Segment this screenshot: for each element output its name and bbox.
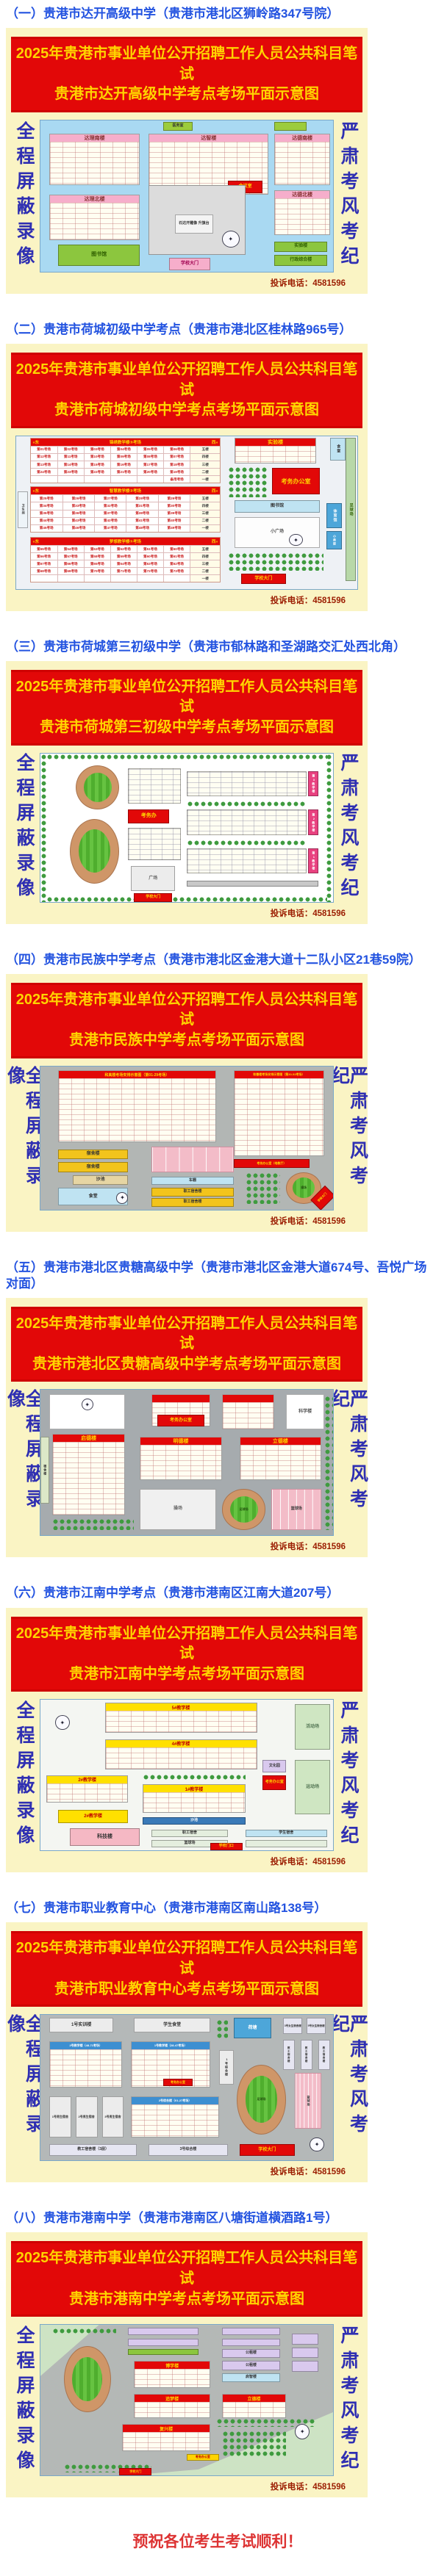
- room-row: 第44考场第43考场第42考场第41考场第40考场二楼: [31, 517, 221, 524]
- banner-line1: 2025年贵港市事业单位公开招聘工作人员公共科目笔试: [11, 44, 362, 84]
- trees-6-5: [143, 1774, 245, 1781]
- block-label: 考务办公室: [281, 478, 310, 485]
- block-label: 学生宿舍: [279, 1831, 293, 1836]
- exam-room-cell: 第20考场: [137, 469, 163, 475]
- field-inner: 操场: [293, 1177, 315, 1198]
- exam-grid: [50, 2049, 122, 2087]
- floor-label: 一楼: [190, 476, 220, 483]
- room-row: 第55考场第54考场第53考场第52考场第51考场第50考场五楼: [31, 545, 221, 552]
- exam-room-cell: 第37考场: [94, 510, 126, 517]
- exam-room-cell: 第32考场: [94, 502, 126, 509]
- block-label: 3号综合楼: [180, 2148, 197, 2152]
- map-building-8-11: 公租楼: [222, 2361, 281, 2370]
- exam-room-cell: 第51考场: [137, 546, 163, 552]
- compass-icon-5-1: ✦: [82, 1399, 93, 1410]
- banner-title: 2025年贵港市事业单位公开招聘工作人员公共科目笔试贵港市港南中学考点考场平面示…: [11, 2241, 362, 2317]
- map-building-8-13: [292, 2334, 318, 2344]
- side-left-column: 全程屏蔽录像: [10, 120, 40, 273]
- exam-room-cell: [110, 476, 137, 483]
- block-label: 食堂: [89, 1194, 98, 1199]
- banner-title: 2025年贵港市事业单位公开招聘工作人员公共科目笔试贵港市江南中学考点考场平面示…: [11, 1617, 362, 1692]
- exam-room-cell: 第61考场: [163, 553, 190, 560]
- exam-room-cell: 第07考场: [163, 454, 190, 461]
- banner-line1: 2025年贵港市事业单位公开招聘工作人员公共科目笔试: [11, 360, 362, 400]
- exam-room-cell: 第72考场: [137, 568, 163, 574]
- map-building-8-6: [128, 2349, 199, 2355]
- block-label: 体育馆: [332, 509, 337, 522]
- exam-room-cell: 第03考场: [84, 447, 110, 453]
- map-building-grid-1-10: 达德北楼: [274, 190, 330, 236]
- block-label: 行政综合楼: [290, 258, 312, 263]
- room-row: 第25考场第26考场第27考场第28考场第29考场五楼: [31, 494, 221, 502]
- banner-line1: 2025年贵港市事业单位公开招聘工作人员公共科目笔试: [11, 990, 362, 1031]
- block-label: 3号女生宿舍楼: [285, 2024, 301, 2027]
- map-building-grid-7-9: 2号教学楼（48-71考场）: [49, 2041, 123, 2088]
- trees-2-6: [228, 466, 269, 497]
- floor-label: 二楼: [190, 469, 220, 475]
- exam-room-cell: 第44考场: [31, 518, 62, 524]
- map-building-grid-2-4: 实验楼: [235, 438, 316, 463]
- exam-room-cell: 第31考场: [126, 502, 157, 509]
- exam-grid: [275, 198, 329, 235]
- exam-room-cell: [31, 476, 57, 483]
- block-label: 宿舍楼: [87, 1165, 100, 1170]
- map-building-1-14: 行政综合楼: [274, 255, 327, 265]
- room-table-header: «东智慧教学楼②考场西»: [31, 487, 221, 494]
- map-building-4-5: 沙池: [73, 1175, 129, 1186]
- exam-room-cell: 第42考场: [94, 518, 126, 524]
- exam-room-cell: 第14考场: [57, 461, 84, 468]
- map-building-2-1: 卫生间: [18, 491, 28, 528]
- exam-room-cell: 第46考场: [62, 525, 94, 532]
- exam-grid: [235, 446, 315, 463]
- exam-room-cell: 第27考场: [94, 495, 126, 502]
- block-label: 广场: [149, 876, 157, 881]
- complaint-phone: 投诉电话：4581596: [6, 2161, 368, 2179]
- exam-room-cell: 第12考场: [31, 454, 57, 461]
- map-building-3-19: 学校大门: [134, 893, 172, 902]
- floor-label: 五楼: [190, 495, 220, 502]
- exam-room-cell: 第09考场: [110, 454, 137, 461]
- exam-room-cell: 第59考场: [110, 553, 137, 560]
- exam-room-cell: 第34考场: [31, 502, 62, 509]
- exam-room-cell: [57, 575, 84, 582]
- map-building-grid-8-17: 立德楼: [222, 2394, 287, 2418]
- campus-map: 医务室达理南楼达智楼达德南楼会议室达理北楼广场石达开雕像 升旗台✦达德北楼图书馆…: [40, 120, 334, 273]
- trees-3-2: [40, 754, 48, 902]
- map-building-7-21: 学校大门: [240, 2144, 296, 2156]
- banner-line2: 贵港市达开高级中学考点考场平面示意图: [11, 84, 362, 105]
- compass-icon-1-9: ✦: [222, 231, 240, 248]
- side-right-column: 严肃考风考纪: [334, 120, 364, 273]
- exam-room-cell: 第21考场: [110, 469, 137, 475]
- block-label: 石达开雕像 升旗台: [179, 222, 209, 226]
- exam-room-cell: 第45考场: [31, 525, 62, 532]
- map-building-6-17: 学校门口: [210, 1843, 243, 1850]
- section-heading: （七）贵港市职业教育中心（贵港市港南区南山路138号）: [0, 1897, 443, 1922]
- campus-map: 和真楼考场安排示意图（第01-29考场）和善楼考场安排示意图（第30-53考场）…: [40, 1066, 334, 1211]
- section-3: （三）贵港市荷城第三初级中学（贵港市郁林路和圣湖路交汇处西北角）2025年贵港市…: [0, 636, 447, 924]
- trees-4-12: [246, 1172, 281, 1204]
- grid-building-3-5: [128, 768, 181, 804]
- section-panel: 2025年贵港市事业单位公开招聘工作人员公共科目笔试贵港市职业教育中心考点考场平…: [6, 1922, 368, 2182]
- banner-line1: 2025年贵港市事业单位公开招聘工作人员公共科目笔试: [11, 1314, 362, 1354]
- building-name: 达德北楼: [275, 191, 329, 198]
- map-building-8-23: 学校大门: [119, 2468, 151, 2475]
- block-label: 车棚: [189, 1179, 196, 1183]
- floor-label: 一楼: [190, 575, 220, 582]
- field-label: 操场: [301, 1186, 307, 1190]
- map-building-1-0: 医务室: [163, 122, 193, 131]
- floor-label: 三楼: [190, 510, 220, 517]
- trees-5-13: [324, 1396, 333, 1529]
- building-name: 达理北楼: [50, 195, 139, 203]
- complaint-phone: 投诉电话：4581596: [6, 2476, 368, 2494]
- map-building-8-12: 启智楼: [222, 2373, 281, 2382]
- trees-8-1: [52, 2328, 117, 2335]
- block-label: 图书馆: [271, 504, 284, 509]
- block-label: 考务办公室: [170, 1418, 192, 1424]
- exam-room-cell: 第73考场: [163, 568, 190, 574]
- map-building-8-14: [292, 2348, 318, 2358]
- building-name: 复兴楼: [123, 2425, 209, 2432]
- map-building-grid-1-2: 达理南楼: [49, 134, 140, 185]
- side-right-column: 严肃考风考纪: [334, 753, 364, 903]
- map-building-grid-6-6: 1#教学楼: [143, 1784, 245, 1813]
- map-building-2-5: 食堂: [330, 438, 346, 461]
- exam-room-cell: 第04考场: [110, 447, 137, 453]
- map-building-7-1: 学生食堂: [134, 2018, 210, 2032]
- exam-grid: [123, 2432, 209, 2450]
- side-text-right: 严肃考风考纪: [340, 1700, 358, 1850]
- grid-building-3-13: [187, 809, 307, 834]
- block-label: 教工宿舍楼: [305, 2046, 308, 2063]
- block-label: 科学楼: [298, 1410, 312, 1415]
- map-row: «东锦绣教学楼③考场西»第01考场第02考场第03考场第04考场第05考场第06…: [6, 436, 368, 590]
- block-label: 2#教学楼: [84, 1814, 102, 1819]
- map-building-4-11: 职工宿舍楼: [151, 1198, 233, 1207]
- map-building-6-11: 活动场: [295, 1704, 330, 1750]
- banner-line1: 2025年贵港市事业单位公开招聘工作人员公共科目笔试: [11, 2248, 362, 2289]
- exam-room-cell: 第02考场: [57, 447, 84, 453]
- field-inner: [72, 2357, 102, 2401]
- map-building-grid-4-1: 和善楼考场安排示意图（第30-53考场）: [234, 1070, 324, 1156]
- compass-icon-7-22: ✦: [310, 2137, 324, 2152]
- block-label: 食堂: [335, 444, 340, 453]
- exam-room-cell: 第57考场: [57, 553, 84, 560]
- exam-room-cell: 第50考场: [163, 546, 190, 552]
- block-label: 考务办公室: [265, 1781, 284, 1785]
- banner-line2: 贵港市职业教育中心考点考场平面示意图: [11, 1980, 362, 2000]
- banner-line2: 贵港市民族中学考点考场平面示意图: [11, 1031, 362, 1051]
- map-building-7-19: 教工宿舍楼（3层）: [49, 2144, 137, 2156]
- sports-field-8-3: [64, 2346, 111, 2412]
- field-inner: 足球场: [230, 1496, 258, 1523]
- map-building-2-7: 考务办公室: [272, 468, 320, 494]
- building-name: 2#教学楼: [47, 1776, 127, 1783]
- trees-7-2: [216, 2019, 228, 2038]
- field-inner: [84, 773, 112, 802]
- section-4: （四）贵港市民族中学考点（贵港市港北区金港大道十二队小区21巷59院）2025年…: [0, 949, 447, 1232]
- side-text-left: 全程屏蔽录像: [7, 1066, 43, 1211]
- side-text-left: 全程屏蔽录像: [15, 2326, 34, 2475]
- complaint-phone: 投诉电话：4581596: [6, 1851, 368, 1869]
- map-building-grid-6-2: 4#教学楼: [105, 1739, 257, 1769]
- grid-building-3-16: [187, 848, 307, 873]
- section-panel: 2025年贵港市事业单位公开招聘工作人员公共科目笔试贵港市荷城第三初级中学考点考…: [6, 661, 368, 924]
- campus-map: 考务办广场第3教学楼第2教学楼第1教学楼学校大门: [40, 753, 334, 903]
- floor-label: 五楼: [190, 546, 220, 552]
- floor-label: 四楼: [190, 502, 220, 509]
- map-building-7-5: 5号女生宿舍楼: [307, 2018, 326, 2034]
- map-building-7-11: 考务办公室: [163, 2079, 193, 2086]
- exam-room-cell: 第62考场: [163, 560, 190, 567]
- map-building-7-20: 3号综合楼: [149, 2144, 227, 2156]
- map-building-grid-5-7: 启德楼: [52, 1434, 126, 1515]
- exam-room-cell: 第24考场: [31, 469, 57, 475]
- map-building-1-8: 石达开雕像 升旗台: [175, 214, 213, 234]
- block-label: 活动场: [306, 1725, 319, 1730]
- map-building-1-11: 图书馆: [58, 245, 140, 266]
- room-row: 第01考场第02考场第03考场第04考场第05考场第06考场五楼: [31, 446, 221, 453]
- grid-building-3-7: [128, 828, 181, 860]
- map-building-2-9: 小广场: [235, 517, 320, 548]
- building-name: 2号教学楼（48-71考场）: [50, 2042, 122, 2049]
- compass-icon-4-7: ✦: [116, 1192, 128, 1204]
- side-text-right: 严肃考风考纪: [340, 121, 358, 271]
- map-building-1-1: [274, 122, 307, 131]
- block-label: 1号实训楼: [71, 2023, 91, 2028]
- building-name: 2号综合楼（01-27考场）: [132, 2097, 218, 2104]
- map-building-8-19: 考务办公室: [187, 2454, 219, 2460]
- exam-room-cell: 第26考场: [62, 495, 94, 502]
- exam-room-cell: 第56考场: [31, 553, 57, 560]
- block-label: 教工宿舍楼: [287, 2046, 290, 2063]
- map-building-1-12: 学校大门: [169, 258, 210, 270]
- side-text-right: 严肃考风考纪: [331, 2014, 368, 2161]
- banner-line1: 2025年贵港市事业单位公开招聘工作人员公共科目笔试: [11, 677, 362, 718]
- section-panel: 2025年贵港市事业单位公开招聘工作人员公共科目笔试贵港市港北区贵糖高级中学考点…: [6, 1298, 368, 1558]
- room-table-header: «东梦想教学楼①考场西»: [31, 538, 221, 545]
- exam-grid: [135, 2369, 209, 2387]
- exam-room-cell: 第43考场: [62, 518, 94, 524]
- campus-map: 博学楼公租楼公租楼启智楼追梦楼立德楼复兴楼考务办公室✦学校大门: [40, 2324, 334, 2476]
- floor-label: 一楼: [190, 525, 220, 532]
- sports-field-7-17: 足球场: [237, 2065, 287, 2135]
- building-name: 1#教学楼: [143, 1785, 244, 1792]
- block-label: 考务办公室（电教厅）: [257, 1162, 286, 1166]
- section-5: （五）贵港市港北区贵糖高级中学（贵港市港北区金港大道674号、吾悦广场对面）20…: [0, 1257, 447, 1558]
- map-building-6-7: 文化园: [262, 1760, 286, 1772]
- complaint-phone: 投诉电话：4581596: [6, 903, 368, 920]
- exam-room-cell: 第35考场: [31, 510, 62, 517]
- exam-room-cell: 第05考场: [137, 447, 163, 453]
- trees-3-12: [187, 801, 307, 807]
- exam-room-cell: 第71考场: [110, 568, 137, 574]
- block-label: 荷塘: [248, 2026, 257, 2031]
- direction-east-label: «东: [33, 538, 40, 544]
- exam-room-cell: 第22考场: [84, 469, 110, 475]
- section-7: （七）贵港市职业教育中心（贵港市港南区南山路138号）2025年贵港市事业单位公…: [0, 1897, 447, 2182]
- section-heading: （一）贵港市达开高级中学（贵港市港北区狮岭路347号院）: [0, 3, 443, 28]
- exam-room-table-2-0: «东锦绣教学楼③考场西»第01考场第02考场第03考场第04考场第05考场第06…: [30, 438, 221, 483]
- grid-building-3-10: [187, 771, 307, 796]
- basketball-court-7-18: 篮球场: [295, 2073, 321, 2128]
- exam-room-cell: 第25考场: [31, 495, 62, 502]
- direction-east-label: «东: [33, 488, 40, 494]
- section-panel: 2025年贵港市事业单位公开招聘工作人员公共科目笔试贵港市民族中学考点考场平面示…: [6, 974, 368, 1232]
- exam-room-cell: 第65考场: [84, 560, 110, 567]
- block-label: 学生食堂: [163, 2023, 181, 2028]
- exam-room-cell: 第16考场: [110, 461, 137, 468]
- block-label: 职工宿舍楼: [183, 1200, 201, 1205]
- map-building-6-15: 学生宿舍: [246, 1830, 327, 1837]
- exam-room-cell: 第30考场: [158, 502, 190, 509]
- map-row: 全程屏蔽录像1号实训楼学生食堂荷塘3号女生宿舍楼5号女生宿舍楼教工宿舍楼教工宿舍…: [6, 2014, 368, 2161]
- exam-room-cell: 第64考场: [110, 560, 137, 567]
- map-building-grid-1-6: 达理北楼: [49, 195, 140, 240]
- block-label: 学校门口: [219, 1844, 234, 1849]
- trees-8-20: [222, 2431, 287, 2458]
- exam-room-table-2-3: «东梦想教学楼①考场西»第55考场第54考场第53考场第52考场第51考场第50…: [30, 537, 221, 582]
- sports-field-5-11: 足球场: [222, 1489, 266, 1529]
- block-label: 学校大门: [318, 1193, 329, 1204]
- direction-west-label: 西»: [212, 538, 218, 544]
- map-building-8-15: [292, 2361, 318, 2371]
- exam-room-cell: 第28考场: [126, 495, 157, 502]
- exam-grid: [106, 1711, 257, 1732]
- map-building-7-4: 3号女生宿舍楼: [283, 2018, 302, 2034]
- block-label: 沙池: [96, 1177, 105, 1183]
- complaint-phone: 投诉电话：4581596: [6, 590, 368, 607]
- banner-line2: 贵港市港北区贵糖高级中学考点考场平面示意图: [11, 1354, 362, 1375]
- block-label: 学校大门: [146, 895, 160, 900]
- section-heading: （五）贵港市港北区贵糖高级中学（贵港市港北区金港大道674号、吾悦广场对面）: [0, 1257, 443, 1298]
- building-name: 达智楼: [149, 134, 268, 142]
- exam-room-cell: 第66考场: [57, 560, 84, 567]
- section-8: （八）贵港市港南中学（贵港市港南区八塘街道横酒路1号）2025年贵港市事业单位公…: [0, 2207, 447, 2497]
- banner-line1: 2025年贵港市事业单位公开招聘工作人员公共科目笔试: [11, 1938, 362, 1979]
- exam-grid: [106, 1747, 257, 1769]
- exam-room-cell: 第01考场: [31, 447, 57, 453]
- side-text-left: 全程屏蔽录像: [15, 753, 34, 903]
- exam-room-cell: 第15考场: [84, 461, 110, 468]
- floor-label: 二楼: [190, 518, 220, 524]
- exam-room-cell: 第36考场: [62, 510, 94, 517]
- map-building-grid-1-4: 达德南楼: [274, 134, 330, 185]
- block-label: 职工宿舍楼: [183, 1190, 201, 1194]
- map-building-6-10: 科技楼: [70, 1828, 140, 1847]
- campus-map: 1号实训楼学生食堂荷塘3号女生宿舍楼5号女生宿舍楼教工宿舍楼教工宿舍楼教工宿舍楼…: [40, 2014, 334, 2161]
- side-text-right: 严肃考风考纪: [340, 2326, 358, 2475]
- exam-room-cell: 第38考场: [126, 510, 157, 517]
- map-building-grid-7-13: 2号综合楼（01-27考场）: [131, 2096, 218, 2137]
- map-building-2-11: 体育馆: [326, 503, 342, 527]
- room-row: 第12考场第11考场第10考场第09考场第08考场第07考场四楼: [31, 453, 221, 461]
- section-panel: 2025年贵港市事业单位公开招聘工作人员公共科目笔试贵港市荷城初级中学考点考场平…: [6, 344, 368, 611]
- map-building-2-12: 小卖部: [326, 531, 342, 549]
- banner-line2: 贵港市荷城初级中学考点考场平面示意图: [11, 400, 362, 421]
- building-name: [152, 1395, 210, 1402]
- exam-room-cell: [137, 575, 163, 582]
- block-label: 篮球场: [307, 2096, 310, 2107]
- sections-container: （一）贵港市达开高级中学（贵港市港北区狮岭路347号院）2025年贵港市事业单位…: [0, 3, 447, 2497]
- map-building-7-15: 2号男生宿舍: [76, 2096, 98, 2137]
- exam-grid: [135, 2402, 209, 2417]
- section-heading: （四）贵港市民族中学考点（贵港市港北区金港大道十二队小区21巷59院）: [0, 949, 443, 974]
- map-building-7-0: 1号实训楼: [49, 2018, 114, 2032]
- map-building-7-16: 3号男生宿舍: [102, 2096, 124, 2137]
- map-building-grid-5-8: 明德楼: [140, 1437, 221, 1480]
- exam-grid: [59, 1078, 215, 1141]
- exam-room-cell: 第60考场: [137, 553, 163, 560]
- section-panel: 2025年贵港市事业单位公开招聘工作人员公共科目笔试贵港市港南中学考点考场平面示…: [6, 2232, 368, 2497]
- map-building-3-14: 第2教学楼: [308, 809, 318, 834]
- room-row: 第34考场第33考场第32考场第31考场第30考场四楼: [31, 502, 221, 509]
- block-label: 宿舍楼: [87, 1152, 100, 1157]
- trees-3-1: [46, 896, 327, 902]
- exam-room-cell: [110, 575, 137, 582]
- block-label: 教工宿舍楼: [323, 2046, 326, 2063]
- exam-room-cell: 第41考场: [126, 518, 157, 524]
- room-row: 一楼: [31, 574, 221, 582]
- trees-2-14: [228, 552, 323, 571]
- exam-grid: [50, 142, 139, 184]
- exam-room-cell: 第53考场: [84, 546, 110, 552]
- map-building-grid-6-1: 5#教学楼: [105, 1703, 257, 1733]
- exam-grid: [132, 2104, 218, 2136]
- building-name: 追梦楼: [135, 2395, 209, 2402]
- exam-grid: [223, 2402, 286, 2417]
- floor-label: 三楼: [190, 461, 220, 468]
- map-building-grid-8-18: 复兴楼: [122, 2424, 210, 2451]
- banner-title: 2025年贵港市事业单位公开招聘工作人员公共科目笔试贵港市荷城初级中学考点考场平…: [11, 353, 362, 428]
- map-building-7-8: 教工宿舍楼: [318, 2040, 330, 2071]
- trees-5-14: [52, 1518, 134, 1530]
- side-text-right: 严肃考风考纪: [331, 1389, 368, 1536]
- block-label: 小广场: [271, 530, 284, 535]
- building-name: [223, 1395, 274, 1402]
- side-text-left: 全程屏蔽录像: [15, 1700, 34, 1850]
- exam-room-cell: 第08考场: [137, 454, 163, 461]
- complaint-phone: 投诉电话：4581596: [6, 1536, 368, 1554]
- banner-title: 2025年贵港市事业单位公开招聘工作人员公共科目笔试贵港市职业教育中心考点考场平…: [11, 1931, 362, 2007]
- section-heading: （八）贵港市港南中学（贵港市港南区八塘街道横酒路1号）: [0, 2207, 443, 2232]
- direction-west-label: 西»: [212, 488, 218, 494]
- exam-room-cell: 第33考场: [62, 502, 94, 509]
- building-name: 立德楼: [223, 2395, 286, 2402]
- banner-title: 2025年贵港市事业单位公开招聘工作人员公共科目笔试贵港市荷城第三初级中学考点考…: [11, 670, 362, 746]
- side-left-column: 全程屏蔽录像: [10, 2324, 40, 2476]
- exam-room-cell: 第49考场: [158, 525, 190, 532]
- block-label: 启智楼: [246, 2375, 257, 2380]
- block-label: 图书馆: [91, 252, 107, 258]
- sports-field-3-4: [76, 765, 120, 810]
- section-heading: （三）贵港市荷城第三初级中学（贵港市郁林路和圣湖路交汇处西北角）: [0, 636, 443, 661]
- room-row: 第35考场第36考场第37考场第38考场第39考场三楼: [31, 510, 221, 517]
- map-building-7-12: 1号综合楼: [219, 2050, 234, 2085]
- map-row: 全程屏蔽录像医务室达理南楼达智楼达德南楼会议室达理北楼广场石达开雕像 升旗台✦达…: [6, 120, 368, 273]
- exam-room-cell: [137, 476, 163, 483]
- floor-label: 三楼: [190, 560, 220, 567]
- map-building-7-7: 教工宿舍楼: [301, 2040, 312, 2071]
- map-building-2-8: 图书馆: [235, 500, 320, 513]
- exam-room-cell: 第70考场: [84, 568, 110, 574]
- compass-icon-8-21: ✦: [295, 2424, 310, 2439]
- map-building-7-6: 教工宿舍楼: [283, 2040, 295, 2071]
- trees-3-3: [326, 754, 333, 902]
- side-right-column: 严肃考风考纪: [334, 1389, 364, 1536]
